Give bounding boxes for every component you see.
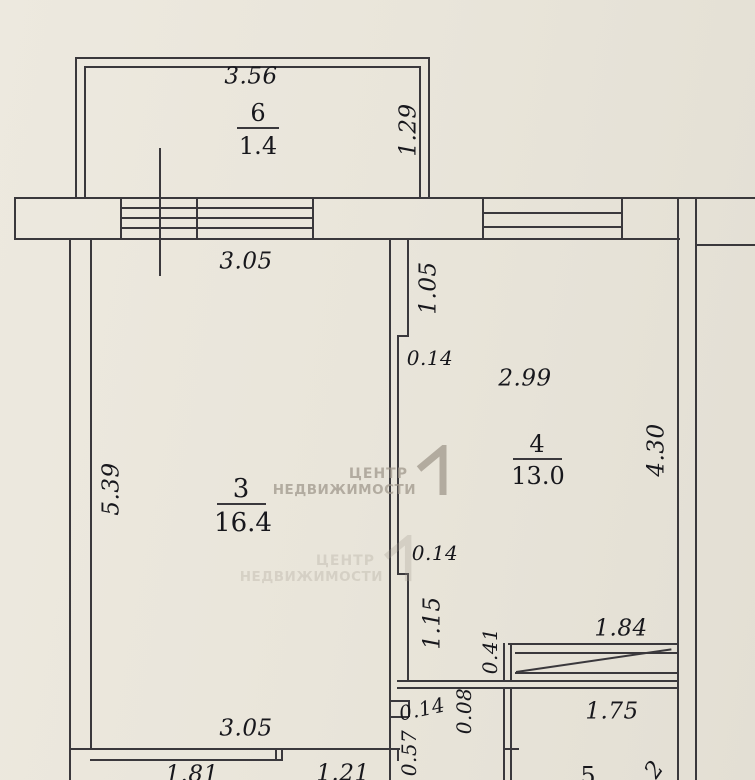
balcony-wall-right-outer	[428, 57, 430, 198]
watermark-logo-faint: ЦЕНТР НЕДВИЖИМОСТИ	[255, 535, 415, 585]
dim-wall-115: 1.15	[422, 596, 445, 649]
dim-bottom-mid: 1.21	[316, 763, 369, 780]
band-left-corner	[14, 197, 16, 240]
balcony-wall-left-inner	[84, 66, 86, 198]
balcony-frac-line	[237, 127, 279, 129]
dim-balcony-depth: 1.29	[398, 103, 421, 156]
room3-area: 16.4	[214, 510, 272, 536]
dim-jog-top: 0.14	[407, 348, 454, 368]
balcony-area: 1.4	[239, 134, 277, 158]
window-b-rail2	[482, 226, 623, 228]
right-wall-inner	[677, 198, 679, 780]
watermark-line2: НЕДВИЖИМОСТИ	[240, 569, 383, 585]
dim-balcony-width: 3.56	[224, 66, 277, 89]
mid-wall-upper-seg	[407, 238, 409, 337]
room3-number: 3	[233, 476, 250, 502]
bottom-jamb-1a	[275, 748, 277, 761]
balcony-wall-left-outer	[75, 57, 77, 198]
right-wall-outer	[695, 198, 697, 780]
hall-top-wall-1	[397, 680, 679, 682]
dim-room4-width: 2.99	[498, 368, 551, 391]
bottom-jamb-2a	[389, 748, 391, 761]
room3-frac-line	[217, 503, 266, 505]
dim-stub: 0.41	[480, 628, 500, 675]
watermark-logo: ЦЕНТР НЕДВИЖИМОСТИ	[295, 445, 450, 501]
door-wall-top	[508, 643, 679, 645]
dim-wall-008: 0.08	[454, 688, 474, 735]
room4-area: 13.0	[511, 464, 564, 488]
floor-plan-canvas: ЦЕНТР НЕДВИЖИМОСТИ ЦЕНТР НЕДВИЖИМОСТИ 3.…	[0, 0, 755, 780]
window-a-rail2	[120, 217, 314, 219]
dim-bottom-left: 1.81	[165, 764, 218, 780]
balcony-wall-top-outer	[75, 57, 430, 59]
dim-room5-width: 1.75	[585, 701, 638, 724]
door-bottom-line	[515, 672, 678, 674]
hall-top-wall-2	[397, 687, 679, 689]
room4-number: 4	[529, 432, 544, 456]
room4-frac-line	[513, 458, 562, 460]
watermark-line2: НЕДВИЖИМОСТИ	[273, 482, 416, 498]
interior-top-line	[14, 238, 680, 240]
band-top-line	[14, 197, 755, 199]
room5-number: 5	[580, 764, 595, 780]
window-a-right	[312, 197, 314, 240]
realty-center-logo-icon	[381, 535, 415, 583]
dim-room3-top: 3.05	[219, 251, 272, 274]
section-line	[159, 148, 161, 276]
room5-left-wall-b	[510, 687, 512, 780]
balcony-number: 6	[250, 101, 265, 125]
window-b-left	[482, 198, 484, 240]
window-a-rail3	[120, 227, 314, 229]
dim-room5-partial: 2	[641, 757, 669, 780]
dim-room3-left: 5.39	[101, 462, 124, 515]
watermark-line1: ЦЕНТР	[349, 466, 408, 482]
window-a-mullion	[196, 197, 198, 240]
dim-door-width: 1.84	[594, 618, 647, 641]
left-wall-inner	[90, 238, 92, 750]
stub-wall-left	[503, 643, 505, 682]
realty-center-logo-icon	[414, 445, 450, 497]
room5-wall-notch	[503, 748, 519, 750]
dim-wall-105: 1.05	[418, 261, 441, 314]
stub-wall-right	[510, 643, 512, 682]
left-wall-outer	[69, 238, 71, 780]
mid-wall-room3-side	[389, 238, 391, 780]
dim-jog-mid: 0.14	[412, 543, 459, 563]
room3-bottom-outer	[69, 748, 400, 750]
watermark-line1: ЦЕНТР	[316, 553, 375, 569]
window-b-right	[621, 198, 623, 240]
dim-jog-bottom: 0.14	[397, 694, 447, 723]
bottom-jamb-1b	[281, 748, 283, 761]
window-a-left	[120, 197, 122, 240]
room5-left-wall-a	[503, 687, 505, 780]
window-a-rail1	[120, 207, 314, 209]
dim-room3-bottom: 3.05	[219, 718, 272, 741]
neighbor-top-wall	[695, 244, 755, 246]
dim-room4-right: 4.30	[646, 423, 669, 476]
mid-wall-lower-seg	[407, 573, 409, 682]
window-b-rail1	[482, 212, 623, 214]
dim-wall-057: 0.57	[399, 730, 419, 777]
